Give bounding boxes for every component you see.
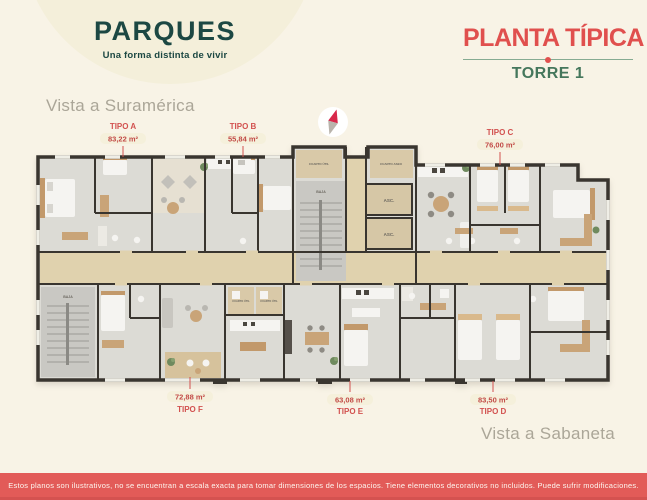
stairs-core-label: BAJA [316, 190, 326, 194]
stairs-west [41, 287, 95, 377]
unit-a-area: 83,22 m² [108, 135, 139, 144]
unit-f-area: 72,88 m² [175, 393, 206, 402]
floor-plan: ASC. ASC. BAJA BAJA CUARTO ÚTIL CUARTO A… [0, 0, 647, 500]
unit-d-name: TIPO D [480, 407, 507, 416]
disclaimer-bar: Estos planos son ilustrativos, no se enc… [0, 473, 647, 500]
unit-c-area: 76,00 m² [485, 141, 516, 150]
page: PARQUES Una forma distinta de vivir PLAN… [0, 0, 647, 500]
unit-c-name: TIPO C [487, 128, 514, 137]
elevator-1-label: ASC. [384, 198, 395, 203]
stairs-west-label: BAJA [63, 295, 73, 299]
building-plan: ASC. ASC. BAJA BAJA CUARTO ÚTIL CUARTO A… [38, 147, 608, 384]
unit-f-name: TIPO F [177, 405, 203, 414]
unit-e-name: TIPO E [337, 407, 364, 416]
stairs-core [296, 181, 346, 281]
compass-icon [318, 107, 348, 137]
unit-b-name: TIPO B [230, 122, 257, 131]
utility-room-label-1: CUARTO ÚTIL [309, 161, 329, 166]
cleaning-room-label: CUARTO ASEO [380, 162, 403, 166]
unit-e-area: 63,08 m² [335, 396, 366, 405]
unit-a-name: TIPO A [110, 122, 137, 131]
unit-b-area: 55,84 m² [228, 135, 259, 144]
unit-d-area: 83,50 m² [478, 396, 509, 405]
elevator-2-label: ASC. [384, 232, 395, 237]
disclaimer-text: Estos planos son ilustrativos, no se enc… [8, 481, 639, 490]
